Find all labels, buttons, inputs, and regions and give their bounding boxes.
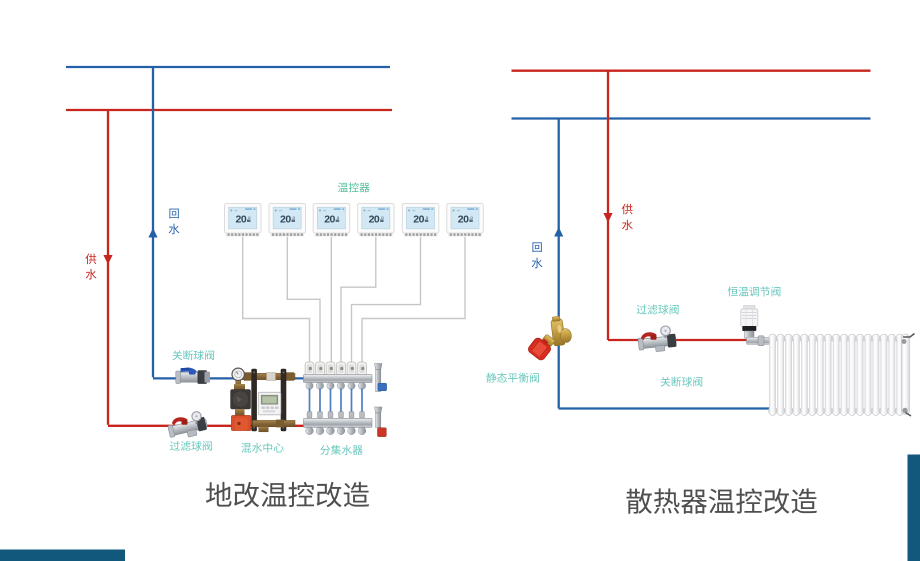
svg-text:20: 20 [413,214,424,226]
svg-text:20: 20 [369,214,380,226]
svg-text:20: 20 [236,214,247,226]
svg-text:20: 20 [280,214,291,226]
svg-text:20: 20 [458,214,469,226]
svg-text:20: 20 [324,214,335,226]
